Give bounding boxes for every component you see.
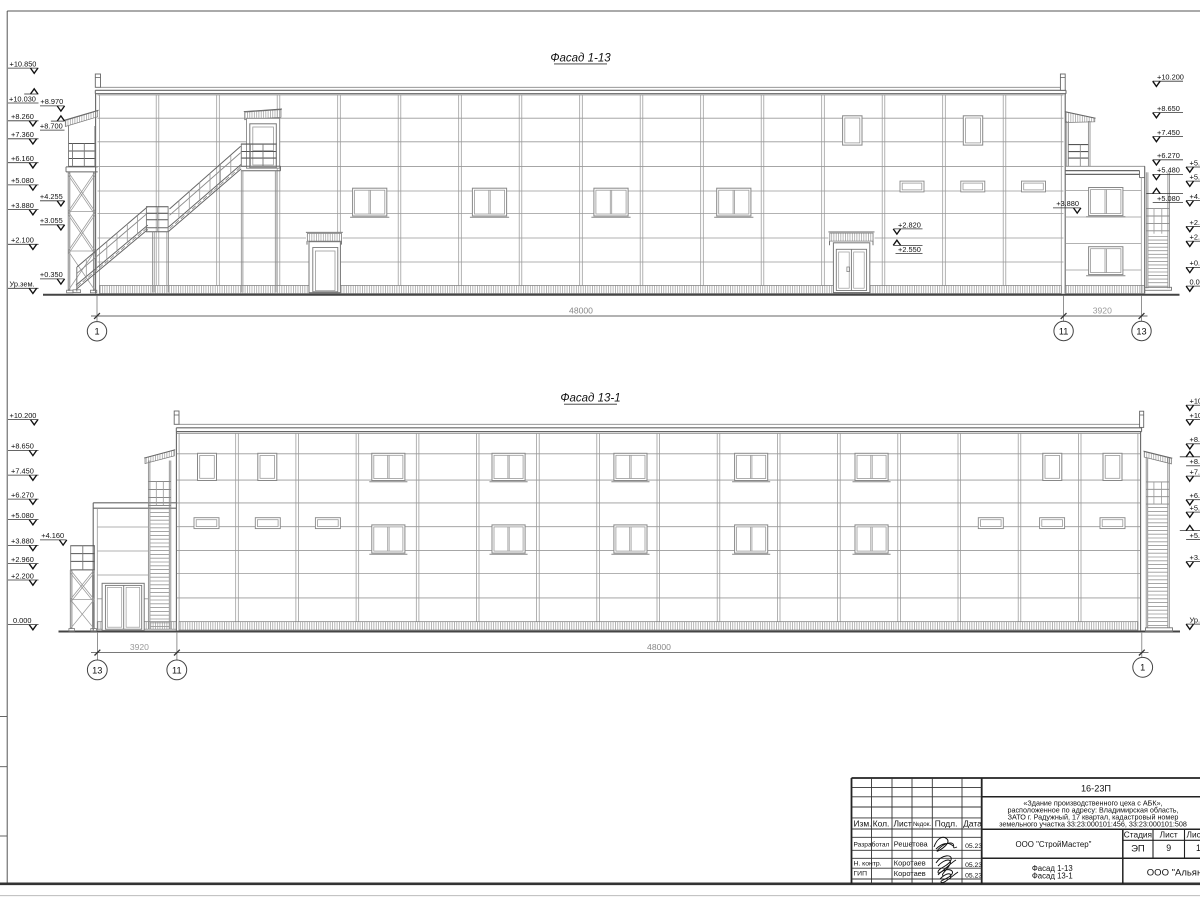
svg-text:+7.450: +7.450 — [11, 466, 34, 475]
svg-text:Ур.зем.: Ур.зем. — [10, 280, 35, 289]
svg-text:+3.880: +3.880 — [1056, 199, 1079, 208]
svg-text:48000: 48000 — [569, 305, 593, 315]
svg-text:+10.200: +10.200 — [1190, 411, 1200, 420]
svg-text:+5.080: +5.080 — [11, 176, 34, 185]
svg-text:+7.450: +7.450 — [1190, 467, 1200, 476]
svg-text:+10.200: +10.200 — [10, 411, 37, 420]
svg-text:ГИП: ГИП — [854, 871, 868, 878]
svg-text:+4.255: +4.255 — [1190, 192, 1200, 201]
svg-text:+10.030: +10.030 — [9, 94, 36, 103]
svg-text:+6.270: +6.270 — [1157, 151, 1180, 160]
svg-text:+10.200: +10.200 — [1157, 73, 1184, 82]
svg-text:Подл.: Подл. — [935, 818, 958, 828]
svg-text:1: 1 — [1196, 843, 1200, 853]
svg-text:+7.450: +7.450 — [1157, 128, 1180, 137]
svg-text:+8.650: +8.650 — [1190, 435, 1200, 444]
svg-text:ООО "Альянс": ООО "Альянс" — [1147, 867, 1200, 878]
svg-text:+4.255: +4.255 — [40, 192, 63, 201]
svg-text:+3.880: +3.880 — [11, 201, 34, 210]
svg-text:+4.160: +4.160 — [41, 531, 64, 540]
svg-text:ООО "СтройМастер": ООО "СтройМастер" — [1015, 840, 1091, 849]
svg-text:+2.100: +2.100 — [1190, 218, 1200, 227]
svg-text:+5.480: +5.480 — [1190, 158, 1200, 167]
svg-text:Стадия: Стадия — [1124, 830, 1152, 840]
svg-text:+5.080: +5.080 — [11, 511, 34, 520]
svg-text:+2.100: +2.100 — [11, 236, 34, 245]
svg-text:3920: 3920 — [1093, 305, 1112, 315]
svg-text:+5.080: +5.080 — [1190, 531, 1200, 540]
svg-text:+2.200: +2.200 — [11, 571, 34, 580]
svg-text:+0.350: +0.350 — [40, 270, 63, 279]
svg-text:+5.080: +5.080 — [1157, 194, 1180, 203]
svg-text:+8.260: +8.260 — [11, 112, 34, 121]
svg-text:11: 11 — [1059, 326, 1069, 336]
svg-text:Изм.: Изм. — [854, 818, 872, 828]
svg-text:Лист: Лист — [1160, 830, 1178, 840]
svg-text:0.000: 0.000 — [1190, 277, 1200, 286]
svg-text:Коротаев: Коротаев — [894, 859, 926, 868]
svg-text:+5.080: +5.080 — [1190, 172, 1200, 181]
svg-text:+5.480: +5.480 — [1190, 503, 1200, 512]
svg-text:0.000: 0.000 — [13, 616, 32, 625]
svg-text:Листов: Листов — [1187, 830, 1200, 840]
svg-text:№док.: №док. — [913, 821, 931, 828]
svg-text:+6.160: +6.160 — [11, 154, 34, 163]
svg-text:Фасад 1-13: Фасад 1-13 — [550, 53, 611, 65]
svg-text:+3.880: +3.880 — [1190, 553, 1200, 562]
svg-text:Лист: Лист — [894, 818, 912, 828]
svg-text:05.23: 05.23 — [965, 843, 982, 850]
svg-text:Коротаев: Коротаев — [894, 869, 926, 878]
svg-text:+7.360: +7.360 — [11, 130, 34, 139]
svg-text:9: 9 — [1166, 843, 1171, 853]
svg-text:+2.820: +2.820 — [1190, 233, 1200, 242]
svg-text:+3.055: +3.055 — [40, 216, 63, 225]
svg-text:Дата: Дата — [963, 818, 982, 828]
svg-text:+5.480: +5.480 — [1157, 166, 1180, 175]
svg-text:+6.270: +6.270 — [11, 490, 34, 499]
svg-text:+2.550: +2.550 — [898, 245, 921, 254]
svg-text:+10.850: +10.850 — [10, 59, 37, 68]
svg-text:16-23П: 16-23П — [1081, 784, 1111, 794]
svg-text:3920: 3920 — [130, 642, 149, 652]
svg-text:+8.970: +8.970 — [40, 97, 63, 106]
svg-text:+2.820: +2.820 — [898, 220, 921, 229]
svg-text:13: 13 — [92, 665, 102, 675]
svg-text:05.23: 05.23 — [965, 862, 982, 869]
svg-text:Фасад 13-1: Фасад 13-1 — [1032, 872, 1073, 881]
svg-text:Решетова: Решетова — [894, 840, 929, 849]
svg-text:Н. контр.: Н. контр. — [854, 860, 882, 867]
svg-text:+8.650: +8.650 — [11, 442, 34, 451]
svg-text:+0.350: +0.350 — [1190, 259, 1200, 268]
svg-text:11: 11 — [172, 665, 182, 675]
svg-text:Кол.: Кол. — [873, 818, 890, 828]
svg-text:+3.880: +3.880 — [11, 537, 34, 546]
svg-text:1: 1 — [94, 327, 99, 337]
svg-text:48000: 48000 — [647, 642, 671, 652]
svg-text:Фасад 13-1: Фасад 13-1 — [560, 393, 620, 405]
svg-text:+6.270: +6.270 — [1190, 491, 1200, 500]
svg-text:ЭП: ЭП — [1131, 843, 1145, 854]
svg-text:1: 1 — [1140, 663, 1145, 673]
svg-text:Разработал: Разработал — [854, 840, 890, 848]
svg-text:05.23: 05.23 — [965, 872, 982, 879]
svg-text:Ур.зем.: Ур.зем. — [1190, 615, 1200, 624]
svg-text:+10.850: +10.850 — [1190, 397, 1200, 406]
svg-text:земельного участка 33:23:00010: земельного участка 33:23:000101:456, 33:… — [999, 819, 1187, 828]
svg-text:+8.700: +8.700 — [40, 121, 63, 130]
svg-text:13: 13 — [1136, 326, 1146, 336]
svg-text:+8.650: +8.650 — [1157, 104, 1180, 113]
svg-text:+8.260: +8.260 — [1190, 457, 1200, 466]
svg-text:+2.960: +2.960 — [11, 555, 34, 564]
